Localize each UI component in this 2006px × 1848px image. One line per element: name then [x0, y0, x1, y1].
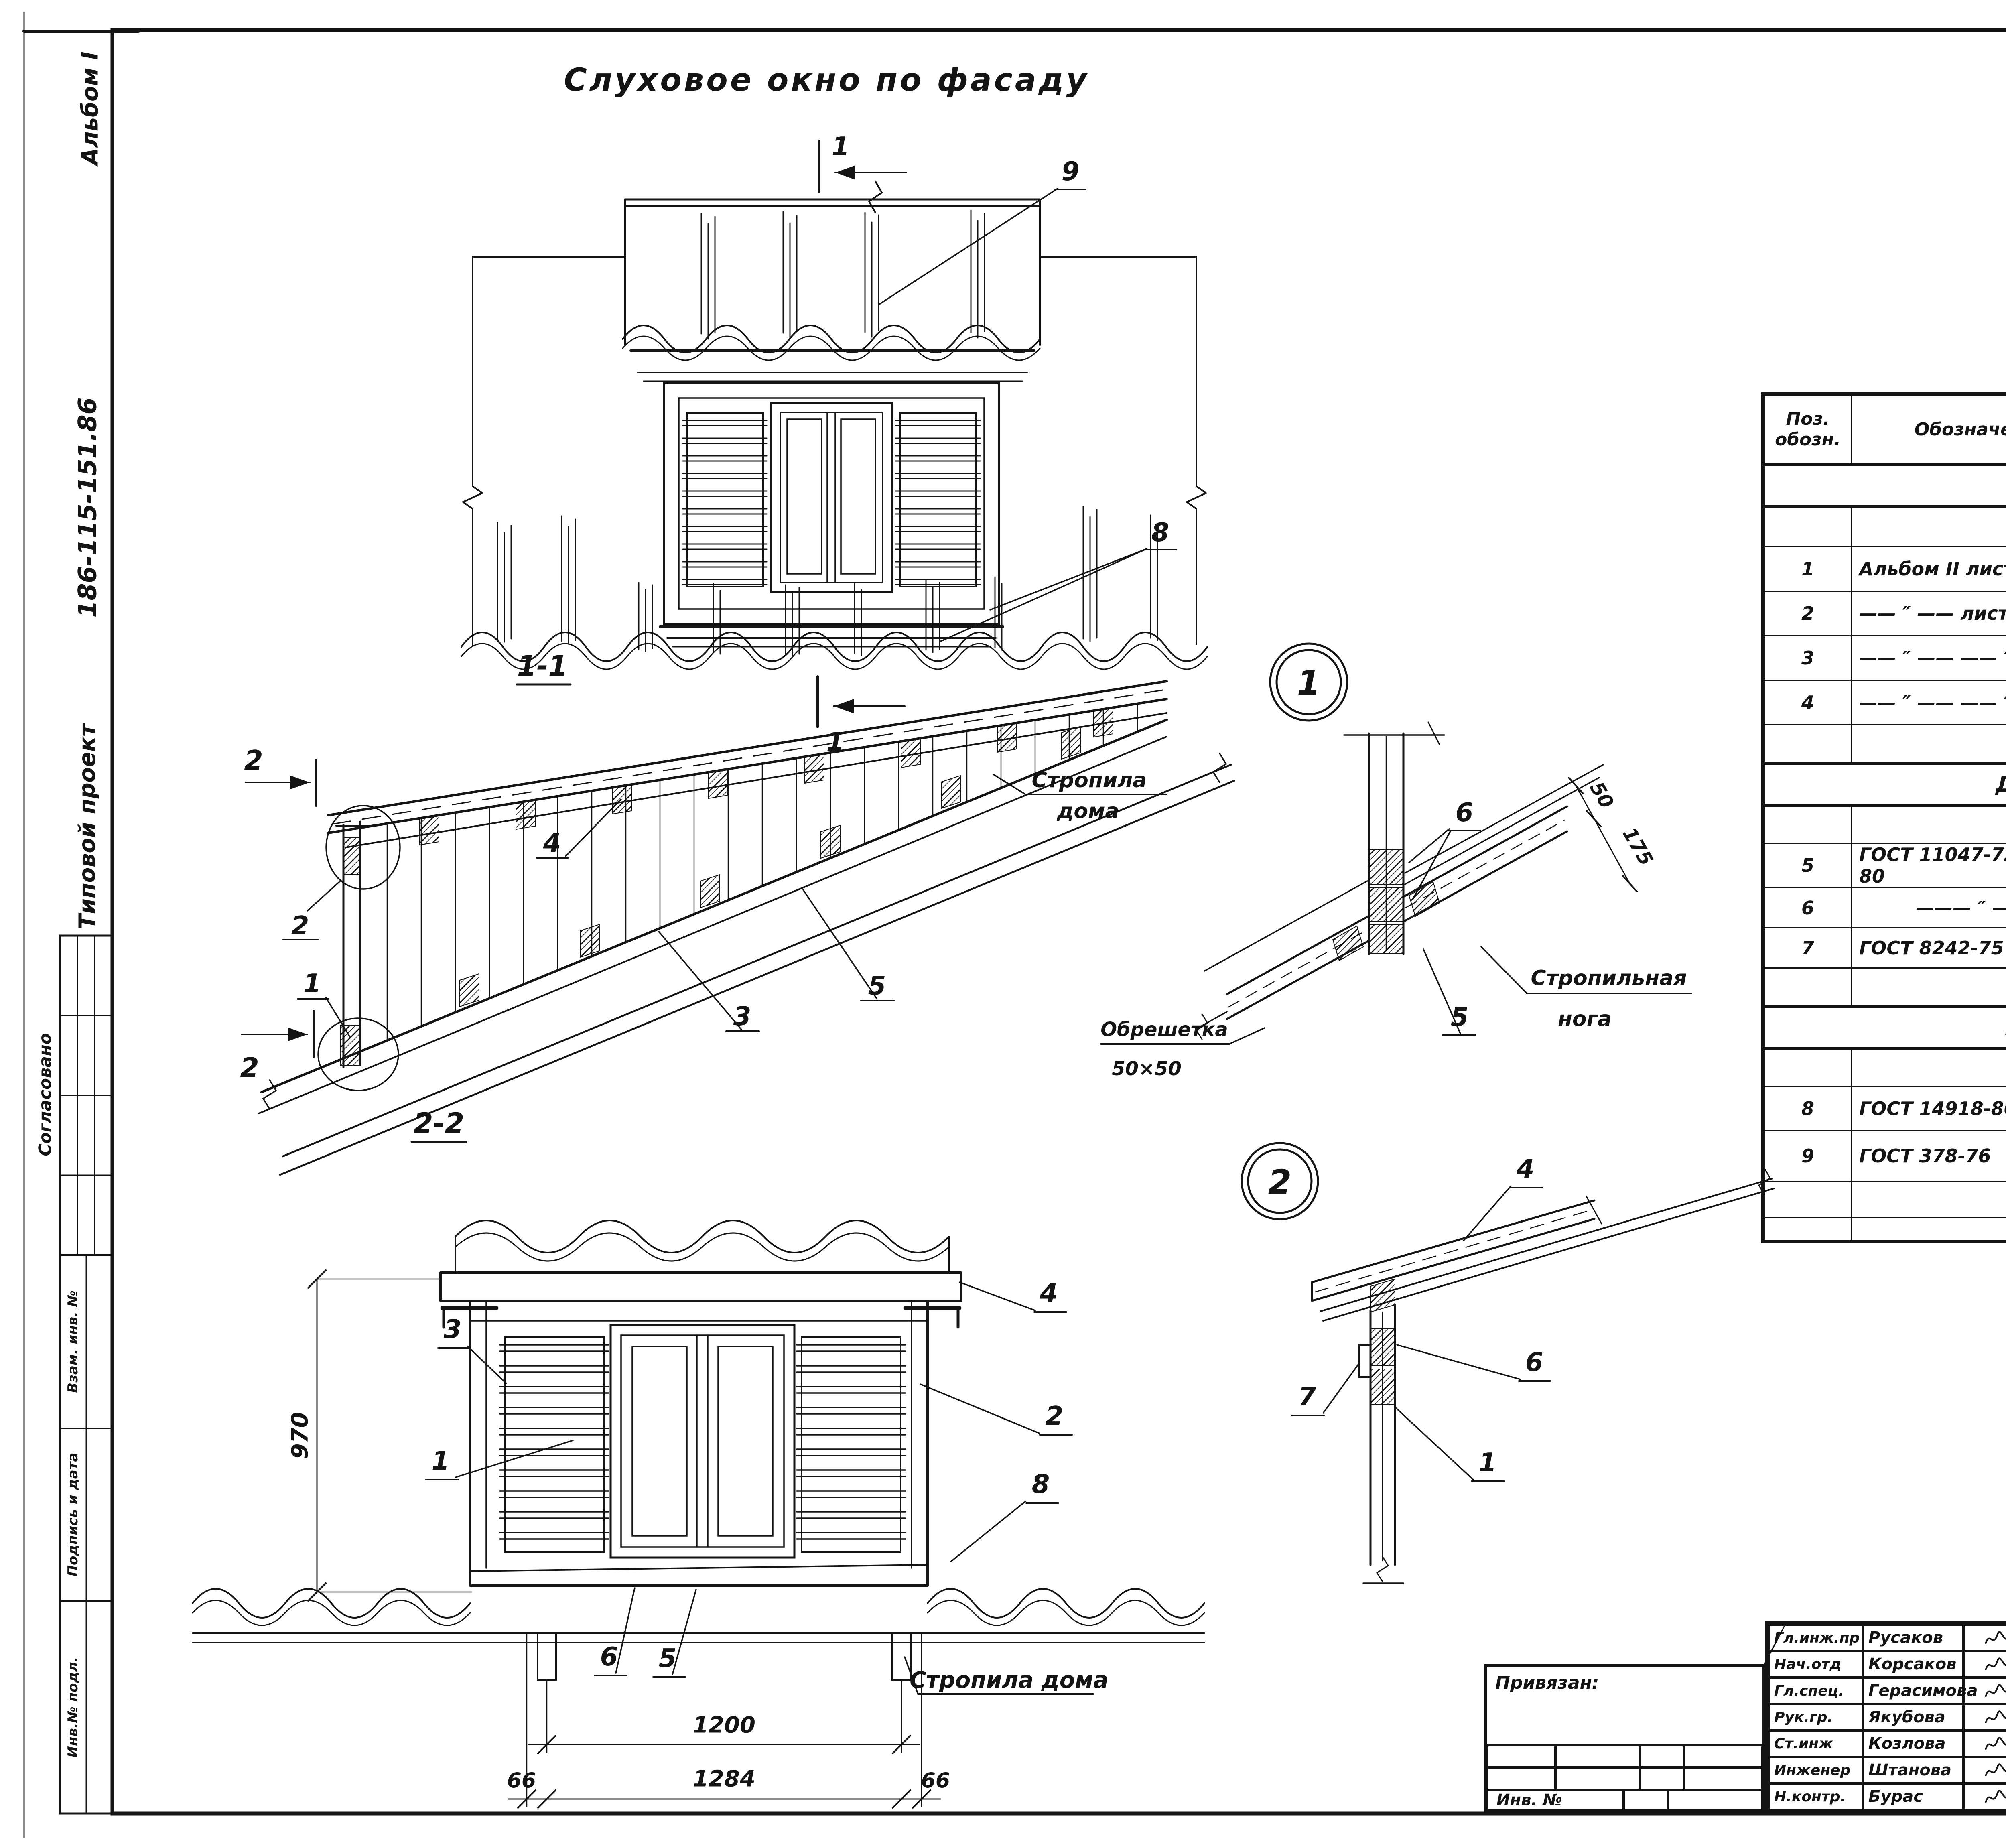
facade-view-linework — [461, 141, 1207, 727]
s11-section-arrow-2-bottom: 2 — [240, 1052, 259, 1084]
attachment-grid-cell — [1555, 1745, 1640, 1768]
spec-cell-designation: ——— ″ ——— — [1852, 888, 2006, 928]
spec-cell-designation: —— ″ —— —— ″ —— — [1852, 680, 2006, 725]
spec-row-2: 2 —— ″ —— лист 5 Ф8-2 Боковой щит правый… — [1763, 591, 2006, 636]
s11-callout-1: 1 — [303, 969, 321, 999]
spec-cell-designation: —— ″ —— —— ″ —— — [1852, 636, 2006, 680]
s11-callout-5: 5 — [868, 971, 886, 1001]
s22-dim-66-left: 66 — [507, 1769, 536, 1793]
staff-row: Н.контр. Бурас — [1769, 1783, 2006, 1810]
spec-empty-cell — [1763, 507, 1852, 547]
det1-lathing-note-line2: 50×50 — [1112, 1058, 1182, 1080]
facade-callout-8: 8 — [1151, 518, 1169, 548]
s22-callout-1: 1 — [432, 1446, 450, 1476]
spec-cell-designation: ГОСТ 14918-80 — [1852, 1086, 2006, 1131]
spec-cell-pos: 2 — [1763, 591, 1852, 636]
s22-callout-2: 2 — [1046, 1401, 1064, 1431]
spec-cell-pos: 7 — [1763, 928, 1852, 968]
det1-callout-5: 5 — [1451, 1003, 1469, 1032]
spec-empty-cell — [1852, 1218, 2006, 1242]
spec-empty-cell — [1763, 1048, 1852, 1086]
staff-role: Рук.гр. — [1769, 1704, 1863, 1730]
spec-cell-designation: Альбом II лист 4 — [1852, 547, 2006, 591]
staff-name: Корсаков — [1863, 1651, 1963, 1677]
spec-empty-cell — [1763, 1182, 1852, 1218]
staff-row: Рук.гр. Якубова — [1769, 1704, 2006, 1730]
spec-cell-designation: ГОСТ 8242-75 — [1852, 928, 2006, 968]
det1-lathing-note-line1: Обрешетка — [1100, 1018, 1228, 1041]
s11-callout-4: 4 — [543, 829, 561, 858]
facade-section-mark-1-bottom: 1 — [826, 727, 845, 757]
attachment-grid-cell — [1624, 1790, 1668, 1811]
spec-empty-cell — [1763, 968, 1852, 1006]
staff-role: Н.контр. — [1769, 1783, 1863, 1810]
spec-empty-row — [1763, 1048, 2006, 1086]
signature-scribble — [1963, 1651, 2006, 1677]
attachment-grid-row — [1487, 1767, 1762, 1790]
spec-header-pos: Поз. обозн. — [1763, 394, 1852, 465]
signature-scribble — [1963, 1757, 2006, 1783]
spec-section-products: Изделия — [1763, 465, 2006, 507]
signature-scribble — [1963, 1730, 2006, 1757]
facade-section-mark-1-top: 1 — [832, 132, 850, 162]
margin-signature-date-label: Подпись и дата — [65, 1453, 81, 1577]
signature-scribble — [1963, 1677, 2006, 1704]
attachment-grid-cell — [1487, 1745, 1555, 1768]
det2-callout-1: 1 — [1479, 1448, 1497, 1478]
spec-empty-row — [1763, 968, 2006, 1006]
specification-table: Поз. обозн. Обозначение Наименование Кол… — [1761, 392, 2006, 1243]
s11-callout-3: 3 — [733, 1002, 751, 1032]
spec-empty-cell — [1852, 725, 2006, 763]
spec-cell-pos: 1 — [1763, 547, 1852, 591]
spec-row-7: 7 ГОСТ 8242-75 Наличник 13×54 п.м. 4,0 — [1763, 928, 2006, 968]
spec-row-1: 1 Альбом II лист 4 Ф8-1 Оконный блок ком… — [1763, 547, 2006, 591]
title-block-staff: Гл.инж.пр Русаков Нач.отд Корсаков Гл.сп… — [1769, 1625, 2006, 1810]
staff-name: Русаков — [1863, 1625, 1963, 1651]
staff-row: Гл.спец. Герасимова — [1769, 1677, 2006, 1704]
s22-callout-8: 8 — [1032, 1470, 1050, 1499]
spec-header-designation: Обозначение — [1852, 394, 2006, 465]
section-1-1-title: 1-1 — [517, 650, 568, 682]
det2-callout-7: 7 — [1298, 1382, 1316, 1412]
spec-row-6: 6 ——— ″ ——— Ригель слухового окна 50×75×… — [1763, 888, 2006, 928]
facade-title: Слуховое окно по фасаду — [564, 62, 1089, 98]
margin-album-label: Альбом I — [77, 51, 104, 165]
spec-empty-cell — [1852, 507, 2006, 547]
staff-name: Якубова — [1863, 1704, 1963, 1730]
attachment-grid-row — [1487, 1745, 1762, 1768]
s22-callout-6: 6 — [600, 1642, 618, 1672]
spec-empty-row — [1763, 805, 2006, 843]
spec-empty-cell — [1852, 1048, 2006, 1086]
staff-role: Гл.спец. — [1769, 1677, 1863, 1704]
spec-empty-cell — [1852, 805, 2006, 843]
frame-linework — [24, 12, 2006, 1838]
det1-rafter-leg-note-line1: Стропильная — [1531, 966, 1687, 990]
detail-1-number: 1 — [1297, 663, 1320, 703]
staff-name: Бурас — [1863, 1783, 1963, 1810]
attachment-grid-cell — [1684, 1745, 1762, 1768]
signature-scribble — [1963, 1783, 2006, 1810]
spec-cell-designation: ГОСТ 11047-72, 24454-80 — [1852, 843, 2006, 888]
staff-role: Нач.отд — [1769, 1651, 1863, 1677]
s11-callout-2: 2 — [291, 911, 309, 941]
detail-2-number: 2 — [1268, 1162, 1291, 1202]
attachment-block: Привязан: Инв. № — [1484, 1664, 1765, 1813]
attachment-grid-cell — [1555, 1767, 1640, 1790]
spec-empty-cell — [1852, 968, 2006, 1006]
det2-callout-6: 6 — [1525, 1348, 1543, 1377]
spec-empty-cell — [1852, 1182, 2006, 1218]
signature-scribble — [1963, 1625, 2006, 1651]
spec-cell-pos: 5 — [1763, 843, 1852, 888]
attachment-grid-cell — [1668, 1790, 1762, 1811]
inventory-number-label: Инв. № — [1487, 1790, 1624, 1811]
staff-row: Инженер Штанова — [1769, 1757, 2006, 1783]
staff-name: Штанова — [1863, 1757, 1963, 1783]
s22-callout-5: 5 — [659, 1644, 677, 1673]
staff-row: Гл.инж.пр Русаков — [1769, 1625, 2006, 1651]
margin-project-type: Типовой проект — [75, 724, 101, 930]
s11-section-arrow-2-top: 2 — [244, 745, 263, 777]
facade-callout-9: 9 — [1062, 157, 1080, 187]
s22-dim-66-right: 66 — [921, 1769, 950, 1793]
staff-row: Ст.инж Козлова — [1769, 1730, 2006, 1757]
margin-agreed-label: Согласовано — [35, 1033, 55, 1156]
spec-row-5: 5 ГОСТ 11047-72, 24454-80 Ригель 50×75 ×… — [1763, 843, 2006, 888]
detail-2-linework — [1242, 1143, 1774, 1583]
s22-dim-1200: 1200 — [693, 1712, 755, 1738]
det2-callout-4: 4 — [1517, 1154, 1535, 1184]
attachment-grid-cell — [1684, 1767, 1762, 1790]
spec-cell-pos: 9 — [1763, 1131, 1852, 1182]
det1-rafter-leg-note-line2: нога — [1558, 1007, 1612, 1031]
staff-role: Инженер — [1769, 1757, 1863, 1783]
spec-row-3: 3 —— ″ —— —— ″ —— Ф8-2л Боковой щит левы… — [1763, 636, 2006, 680]
staff-name: Козлова — [1863, 1730, 1963, 1757]
spec-cell-pos: 3 — [1763, 636, 1852, 680]
section-2-2-linework — [193, 1142, 1204, 1808]
margin-vzam-inv-label: Взам. инв. № — [65, 1290, 81, 1393]
staff-role: Гл.инж.пр — [1769, 1625, 1863, 1651]
staff-row: Нач.отд Корсаков — [1769, 1651, 2006, 1677]
spec-cell-designation: —— ″ —— лист 5 — [1852, 591, 2006, 636]
title-block: Гл.инж.пр Русаков Нач.отд Корсаков Гл.сп… — [1765, 1621, 2006, 1813]
s22-dim-970: 970 — [287, 1412, 313, 1459]
spec-empty-row — [1763, 507, 2006, 547]
spec-header-row: Поз. обозн. Обозначение Наименование Кол… — [1763, 394, 2006, 465]
attachment-grid-cell — [1487, 1767, 1555, 1790]
spec-section-other-materials: Прочие материалы — [1763, 1006, 2006, 1048]
spec-row-4: 4 —— ″ —— —— ″ —— Ф8-3 Кровельный щит 1 — [1763, 680, 2006, 725]
spec-empty-row — [1763, 1182, 2006, 1218]
section-2-2-title: 2-2 — [414, 1107, 464, 1140]
spec-cell-pos: 8 — [1763, 1086, 1852, 1131]
s11-rafter-note-line2: дома — [1057, 799, 1119, 823]
section-1-1-linework — [242, 681, 1234, 1175]
spec-empty-row — [1763, 1218, 2006, 1242]
spec-empty-cell — [1763, 805, 1852, 843]
spec-cell-designation: ГОСТ 378-76 — [1852, 1131, 2006, 1182]
s22-dim-1284: 1284 — [693, 1766, 755, 1792]
attachment-grid-cell — [1640, 1745, 1684, 1768]
spec-section-wood-details: Детали деревянные — [1763, 763, 2006, 805]
attachment-label: Привязан: — [1487, 1667, 1762, 1745]
staff-name: Герасимова — [1863, 1677, 1963, 1704]
spec-cell-pos: 6 — [1763, 888, 1852, 928]
staff-role: Ст.инж — [1769, 1730, 1863, 1757]
s11-rafter-note-line1: Стропила — [1032, 768, 1147, 792]
spec-empty-cell — [1763, 1218, 1852, 1242]
s22-callout-3: 3 — [444, 1315, 462, 1344]
attachment-grid-cell — [1640, 1767, 1684, 1790]
det1-callout-6: 6 — [1456, 798, 1474, 828]
s22-callout-4: 4 — [1040, 1279, 1058, 1308]
spec-row-8: 8 ГОСТ 14918-80 Сталь кровельная оцинко-… — [1763, 1086, 2006, 1131]
signature-scribble — [1963, 1704, 2006, 1730]
spec-empty-cell — [1763, 725, 1852, 763]
margin-doc-number: 186-115-151.86 — [73, 397, 102, 618]
spec-row-9: 9 ГОСТ 378-76 Листы асбестоцементные вол… — [1763, 1131, 2006, 1182]
spec-empty-row — [1763, 725, 2006, 763]
margin-inv-podl-label: Инв.№ подл. — [65, 1657, 81, 1757]
spec-cell-pos: 4 — [1763, 680, 1852, 725]
s22-rafter-note: Стропила дома — [910, 1667, 1109, 1694]
drawing-sheet: Альбом I 186-115-151.86 Типовой проект С… — [0, 0, 2006, 1848]
